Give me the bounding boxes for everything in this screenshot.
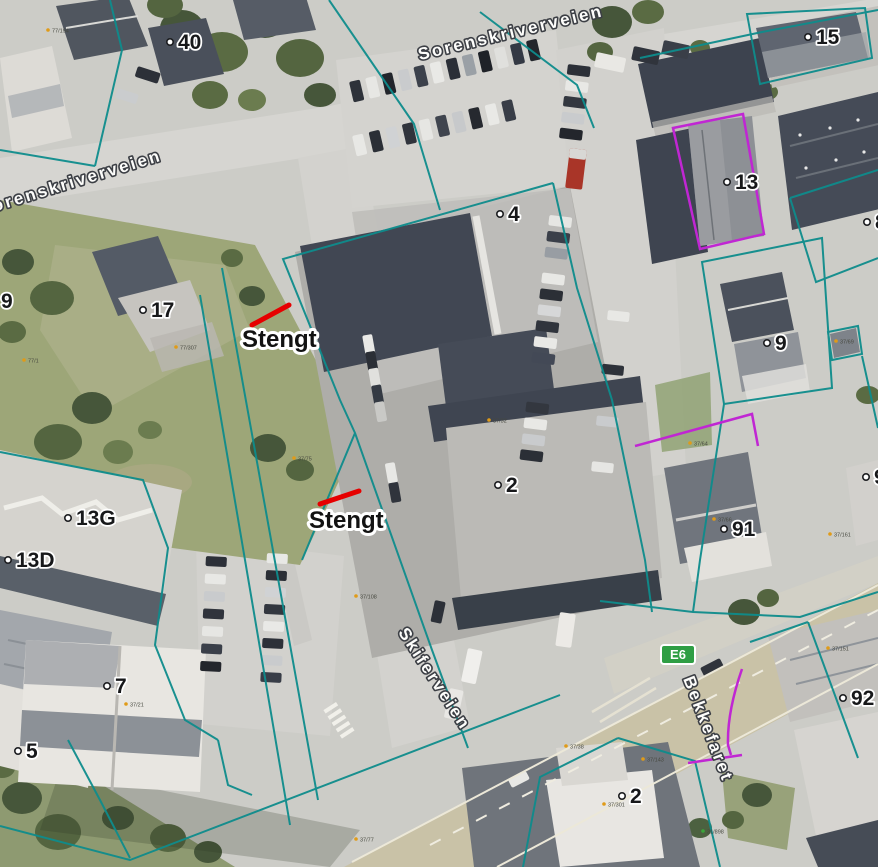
address-number: 92 [851, 687, 874, 710]
address-number: 4 [508, 203, 520, 226]
address-number: 7 [115, 675, 127, 698]
parcel-code: 77/1 [28, 359, 39, 365]
parcel-code: 37/151 [832, 647, 849, 653]
parcel-code: 37/32 [493, 419, 507, 425]
parcel-code: 37/66 [718, 518, 732, 524]
parcel-code: 37/143 [647, 758, 664, 764]
address-number: 17 [151, 299, 174, 322]
address-number: 91 [732, 518, 756, 541]
parcel-code: 37/75 [298, 457, 312, 463]
parcel-code: 37/64 [694, 442, 708, 448]
address-number: 9 [1, 290, 13, 313]
parcel-code: 37/69 [840, 340, 854, 346]
parcel-code: 31/898 [707, 830, 724, 836]
address-number: 13G [76, 507, 116, 530]
address-label: 9 [0, 290, 13, 313]
parcel-code: 37/301 [608, 803, 625, 809]
closure-label: Stengt [309, 507, 384, 534]
address-number: 2 [506, 474, 518, 497]
address-number: 13 [735, 171, 758, 194]
parcel-code: 37/38 [570, 745, 584, 751]
parcel-code: 37/108 [360, 595, 377, 601]
aerial-map[interactable]: Stengt Stengt Sorenskriverveien Sorenskr… [0, 0, 878, 867]
route-number: E6 [670, 647, 686, 662]
address-number: 9 [874, 466, 878, 489]
address-number: 5 [26, 740, 38, 763]
address-number: 40 [178, 31, 201, 54]
parcel-code: 37/21 [130, 703, 144, 709]
parcel-code: 77/194 [52, 29, 69, 35]
address-number: 13D [16, 549, 55, 572]
parcel-code: 37/77 [360, 838, 374, 844]
address-number: 15 [816, 26, 840, 49]
parcel-code: 37/161 [834, 533, 851, 539]
parcel-code: 77/307 [180, 346, 197, 352]
e6-route-badge: E6 [661, 645, 695, 664]
address-number: 9 [775, 332, 787, 355]
address-number: 2 [630, 785, 642, 808]
map-viewport[interactable]: Stengt Stengt Sorenskriverveien Sorenskr… [0, 0, 878, 867]
closure-label: Stengt [242, 326, 317, 353]
